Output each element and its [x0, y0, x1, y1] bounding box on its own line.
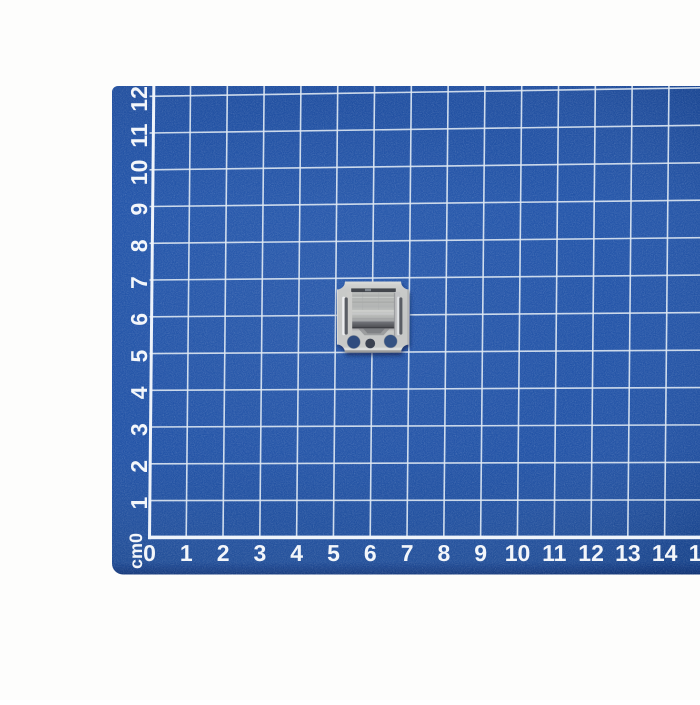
svg-text:4: 4: [290, 540, 303, 566]
svg-text:4: 4: [126, 386, 152, 399]
svg-text:9: 9: [474, 540, 487, 566]
svg-text:15: 15: [689, 540, 700, 566]
svg-text:10: 10: [126, 160, 152, 186]
svg-text:11: 11: [542, 540, 567, 566]
svg-text:cm0: cm0: [126, 533, 146, 569]
svg-text:3: 3: [126, 423, 152, 436]
svg-text:8: 8: [126, 239, 152, 252]
svg-text:1: 1: [126, 496, 152, 509]
svg-text:7: 7: [126, 276, 152, 289]
svg-text:2: 2: [126, 460, 152, 473]
svg-text:8: 8: [438, 540, 451, 566]
svg-text:5: 5: [126, 349, 152, 362]
svg-text:5: 5: [327, 540, 340, 566]
svg-text:6: 6: [126, 313, 152, 326]
svg-text:6: 6: [364, 540, 377, 566]
svg-text:11: 11: [126, 123, 152, 148]
svg-text:14: 14: [652, 540, 678, 566]
svg-text:2: 2: [217, 540, 230, 566]
svg-text:9: 9: [126, 203, 152, 216]
svg-text:12: 12: [126, 86, 152, 112]
svg-text:12: 12: [578, 540, 604, 566]
svg-text:1: 1: [180, 540, 193, 566]
svg-text:7: 7: [401, 540, 414, 566]
svg-text:3: 3: [254, 540, 267, 566]
svg-text:13: 13: [615, 540, 641, 566]
svg-text:10: 10: [505, 540, 531, 566]
